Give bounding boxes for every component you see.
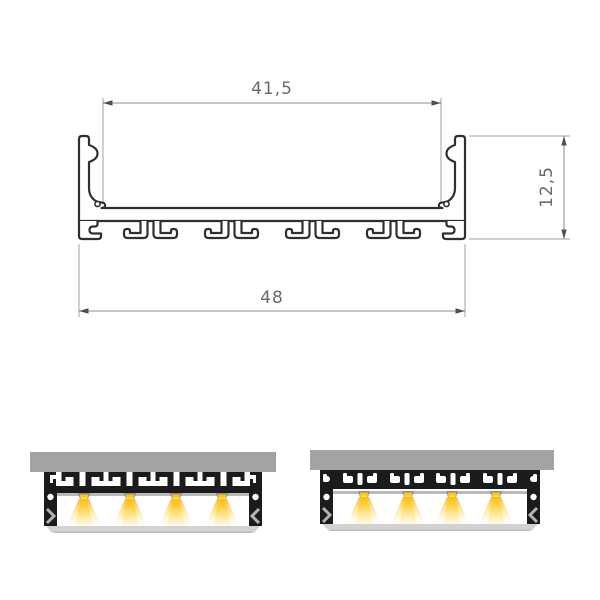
arrowhead bbox=[456, 308, 466, 313]
profile-foot-left bbox=[79, 221, 101, 239]
render-surface-mount-left bbox=[30, 452, 276, 533]
led-modules bbox=[347, 491, 513, 524]
arrowhead bbox=[561, 136, 566, 146]
comb-fins bbox=[44, 472, 262, 486]
diffuser-edge bbox=[331, 530, 529, 532]
arrowhead bbox=[561, 230, 566, 240]
dimension-inner-width: 41,5 bbox=[251, 79, 293, 99]
mounting-plate bbox=[30, 452, 276, 472]
profile-datasheet: 41,5 48 12,5 bbox=[0, 0, 600, 600]
profile-foot-right bbox=[443, 221, 465, 239]
diffuser-edge bbox=[54, 532, 252, 534]
profile-outline bbox=[79, 136, 465, 221]
dimension-overall-width: 48 bbox=[260, 288, 284, 308]
arrowhead bbox=[103, 100, 113, 105]
cross-section-drawing: 41,5 48 12,5 bbox=[79, 79, 570, 317]
dimension-height: 12,5 bbox=[537, 166, 557, 208]
clip-knob-left bbox=[95, 201, 100, 206]
comb-band bbox=[320, 470, 540, 489]
arrowhead bbox=[79, 308, 89, 313]
clip-knob-right bbox=[444, 201, 449, 206]
render-surface-mount-right bbox=[310, 450, 554, 531]
arrowhead bbox=[432, 100, 442, 105]
mounting-plate bbox=[310, 450, 554, 470]
profile-comb-fins bbox=[124, 221, 420, 238]
led-modules bbox=[67, 493, 239, 526]
profile-drawing-sheet: 41,5 48 12,5 bbox=[0, 0, 600, 600]
